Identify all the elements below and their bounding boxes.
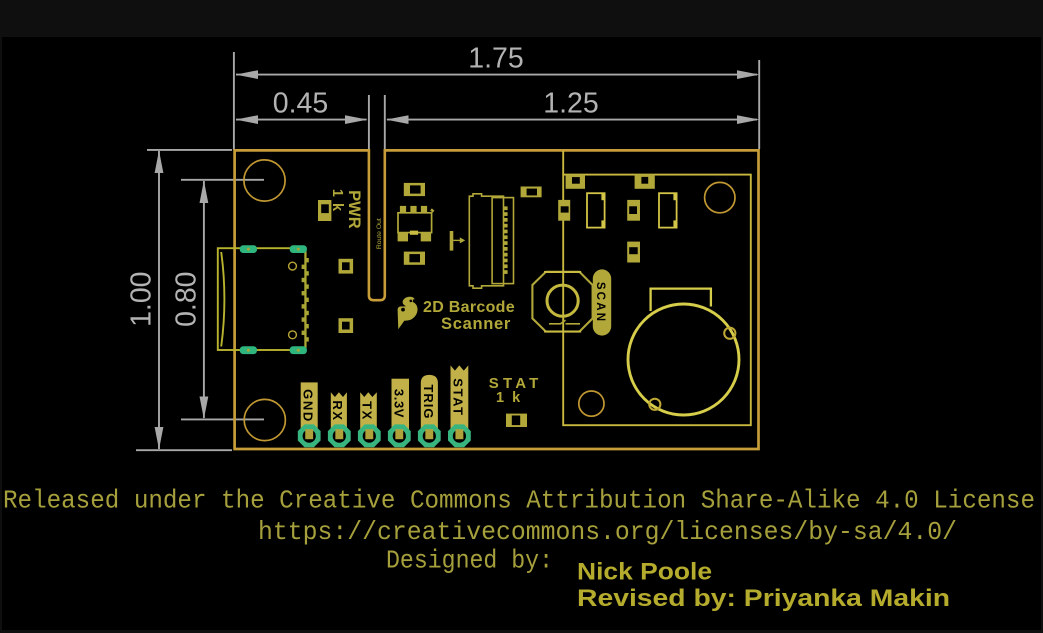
svg-text:GND: GND [301, 389, 316, 423]
svg-text:https://creativecommons.org/li: https://creativecommons.org/licenses/by-… [258, 517, 957, 547]
svg-text:2D Barcode: 2D Barcode [423, 299, 515, 316]
svg-text:Scanner: Scanner [441, 315, 511, 333]
svg-text:Released under the Creative Co: Released under the Creative Commons Attr… [3, 486, 1035, 516]
svg-text:Route Out: Route Out [376, 218, 383, 249]
svg-text:1.00: 1.00 [126, 271, 158, 326]
svg-text:1 k: 1 k [329, 189, 345, 212]
svg-text:1.75: 1.75 [468, 43, 523, 75]
svg-text:Revised by: Priyanka Makin: Revised by: Priyanka Makin [577, 585, 950, 612]
svg-text:TX: TX [360, 401, 375, 421]
svg-text:Nick Poole: Nick Poole [577, 559, 712, 586]
svg-text:SCAN: SCAN [594, 282, 606, 323]
svg-text:0.45: 0.45 [273, 88, 328, 120]
svg-text:TRIG: TRIG [421, 384, 436, 419]
svg-text:STAT: STAT [451, 378, 466, 416]
svg-text:PWR: PWR [345, 190, 363, 229]
svg-text:1 k: 1 k [496, 390, 522, 406]
svg-text:Designed by:: Designed by: [386, 546, 553, 576]
svg-text:1.25: 1.25 [543, 88, 598, 120]
svg-text:0.80: 0.80 [171, 271, 203, 326]
svg-text:3.3V: 3.3V [392, 389, 407, 418]
svg-text:RX: RX [330, 400, 345, 421]
